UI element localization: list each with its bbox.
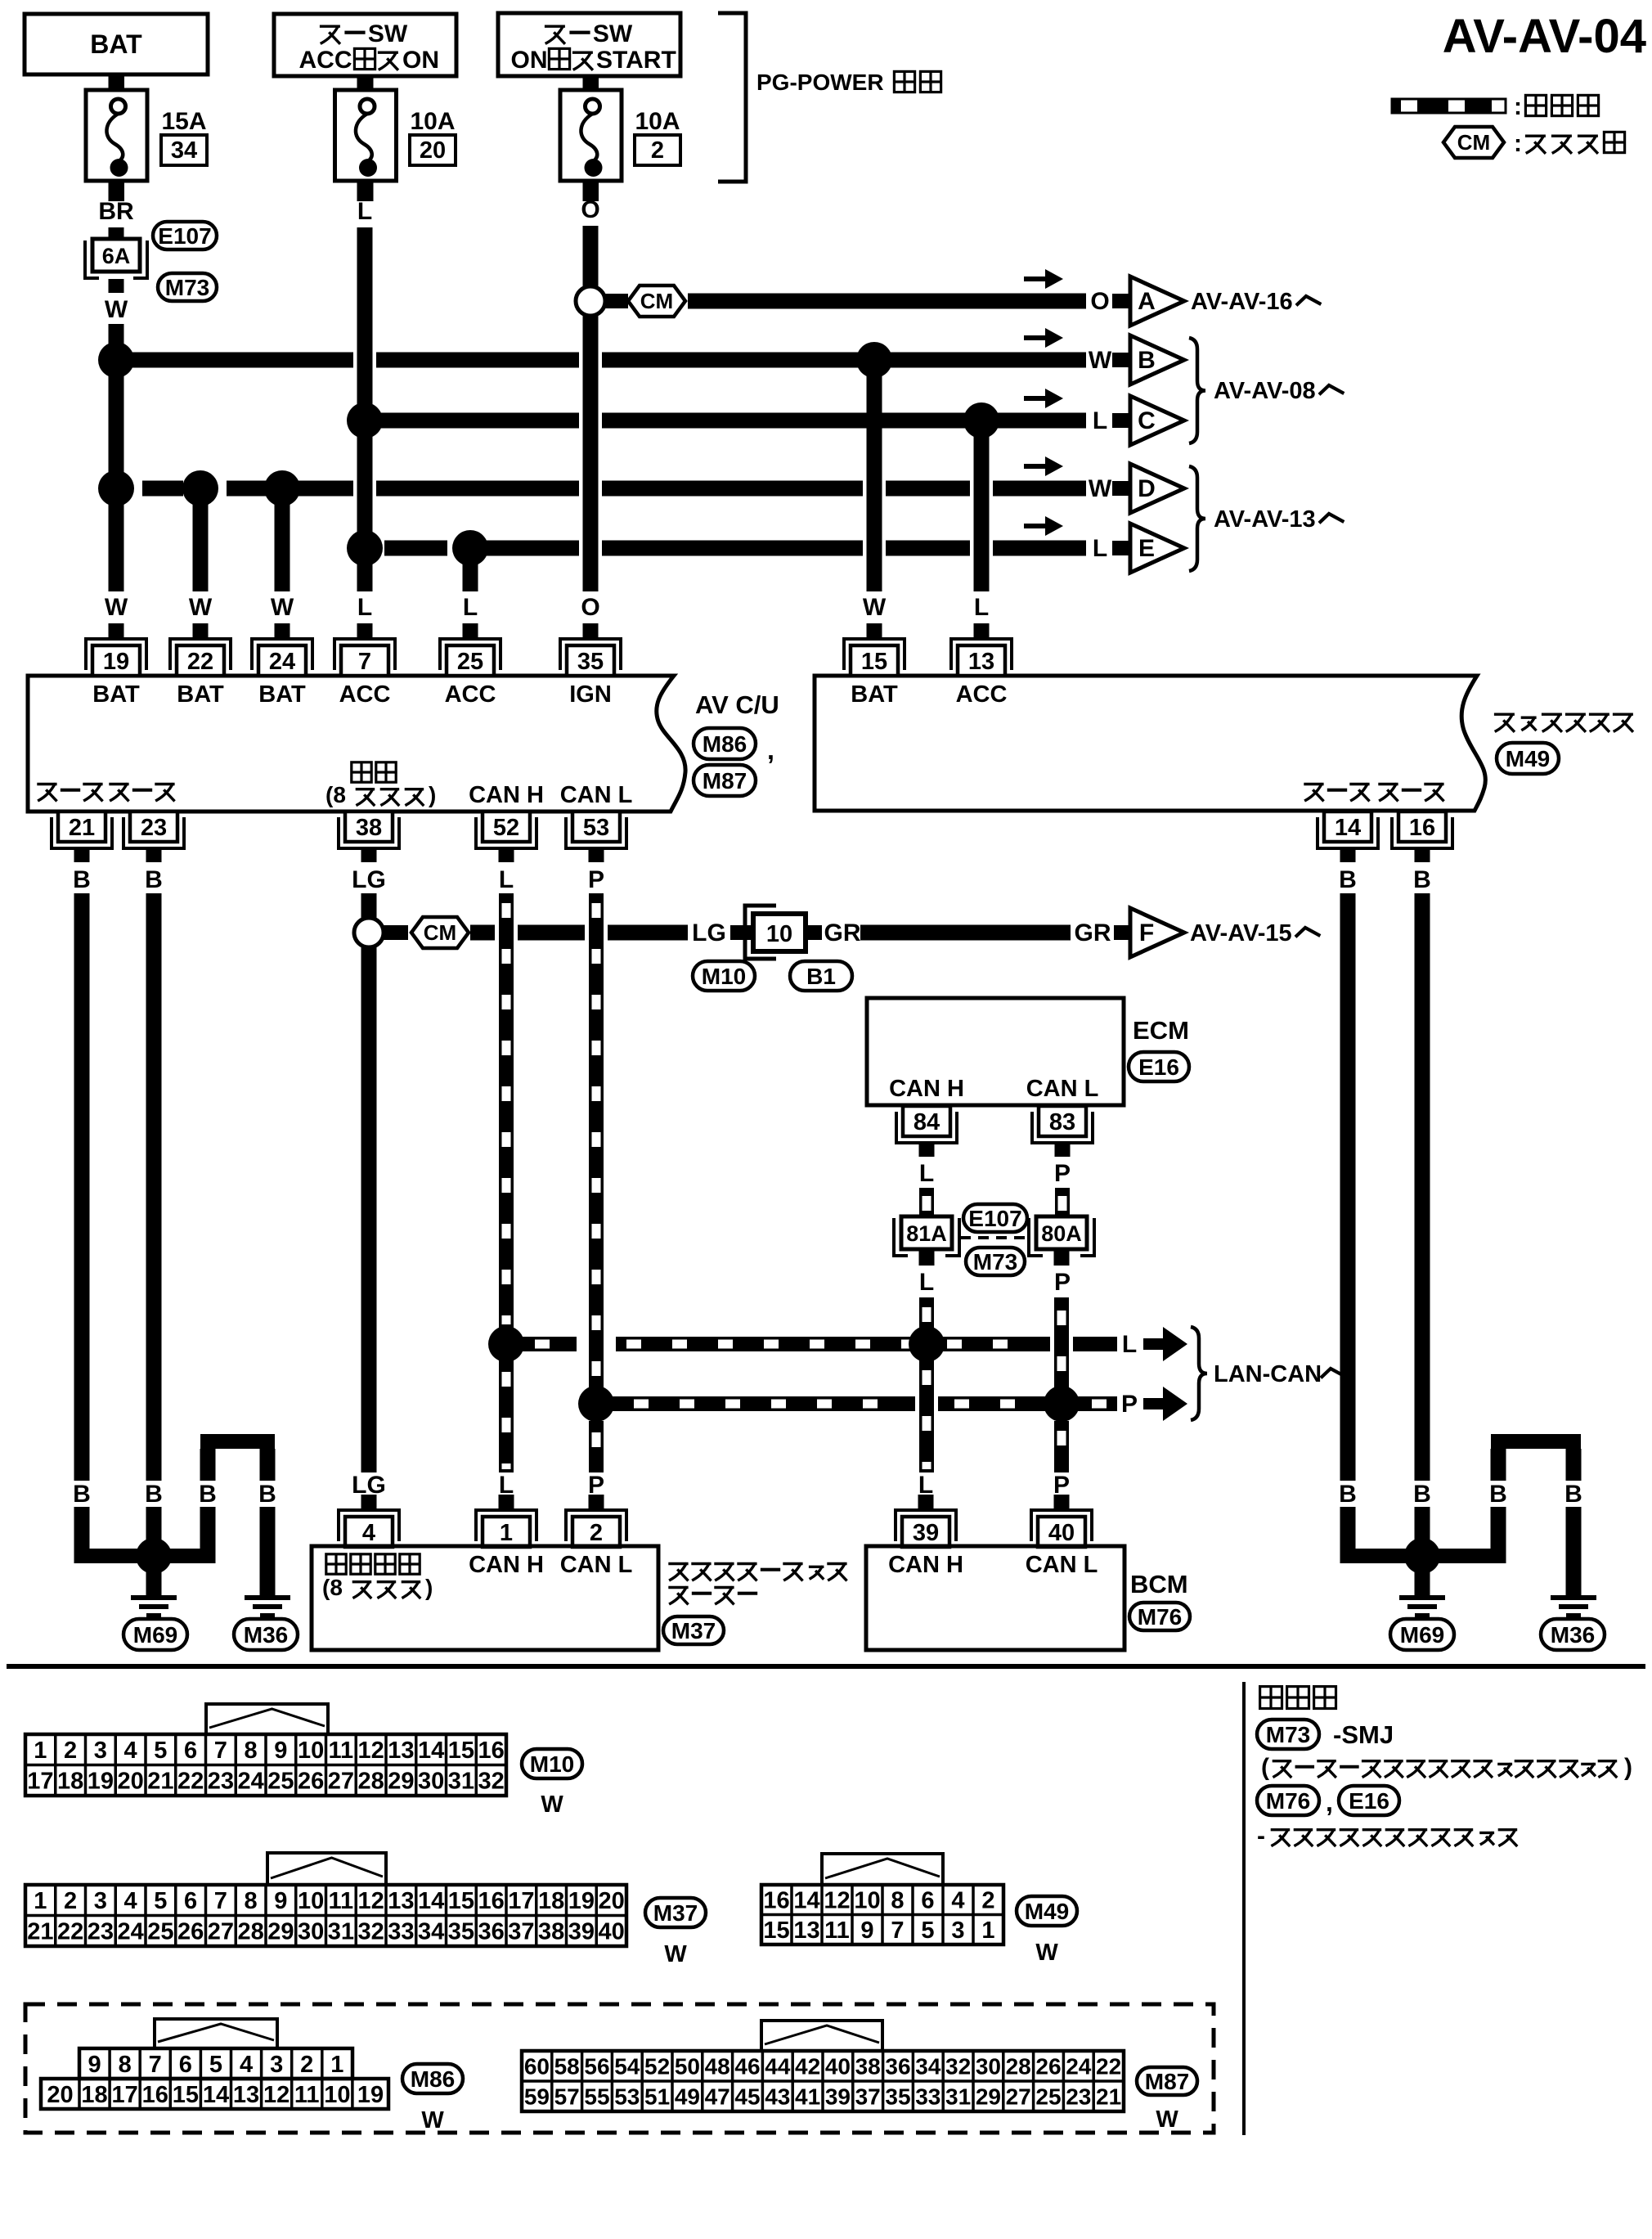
svg-text:27: 27: [1006, 2084, 1031, 2110]
svg-text:F: F: [1139, 919, 1154, 946]
svg-text:O: O: [581, 594, 599, 621]
svg-text:AV C/U: AV C/U: [695, 690, 779, 719]
svg-text:10A: 10A: [410, 108, 455, 135]
svg-text:35: 35: [885, 2084, 910, 2110]
svg-text:M76: M76: [1266, 1788, 1310, 1814]
svg-text:7: 7: [214, 1738, 227, 1764]
svg-text:83: 83: [1049, 1109, 1075, 1135]
svg-text:25: 25: [1035, 2084, 1061, 2110]
svg-text:L: L: [499, 866, 514, 893]
svg-text:B: B: [73, 866, 91, 893]
svg-text:29: 29: [388, 1768, 414, 1794]
svg-text:W: W: [863, 594, 887, 621]
svg-text:59: 59: [524, 2084, 550, 2110]
svg-text:9: 9: [274, 1738, 287, 1764]
svg-text:10: 10: [298, 1888, 324, 1914]
svg-text:IGN: IGN: [569, 681, 612, 708]
svg-text:7: 7: [214, 1888, 227, 1914]
svg-text:W: W: [1156, 2106, 1178, 2133]
svg-text:B: B: [73, 1481, 91, 1508]
svg-text:M87: M87: [703, 768, 747, 794]
svg-text:CAN H: CAN H: [469, 1552, 544, 1578]
svg-text:M37: M37: [653, 1900, 698, 1926]
svg-text:14: 14: [203, 2082, 229, 2108]
svg-text:9: 9: [88, 2052, 101, 2078]
svg-text:W: W: [105, 296, 128, 323]
svg-text:16: 16: [478, 1738, 504, 1764]
svg-text:-: -: [1257, 1823, 1265, 1850]
svg-text:B: B: [1413, 1481, 1431, 1508]
svg-text:40: 40: [825, 2054, 851, 2079]
svg-text:BAT: BAT: [92, 681, 140, 708]
svg-text:13: 13: [388, 1738, 414, 1764]
svg-text:14: 14: [793, 1887, 819, 1913]
svg-text:26: 26: [298, 1768, 324, 1794]
svg-text:B: B: [1339, 1481, 1357, 1508]
svg-text:7: 7: [358, 649, 371, 675]
svg-text:5: 5: [921, 1918, 934, 1944]
svg-text:20: 20: [47, 2082, 73, 2108]
svg-text:B: B: [258, 1481, 276, 1508]
svg-text:12: 12: [824, 1887, 850, 1913]
svg-text:M86: M86: [411, 2066, 455, 2092]
svg-text:44: 44: [765, 2054, 791, 2079]
svg-text:M49: M49: [1506, 746, 1550, 771]
svg-text:23: 23: [1066, 2084, 1091, 2110]
svg-text:20: 20: [420, 137, 446, 164]
svg-text:22: 22: [187, 649, 213, 675]
svg-text:(8: (8: [325, 782, 346, 807]
svg-text:W: W: [1089, 475, 1112, 502]
svg-text:13: 13: [233, 2082, 259, 2108]
svg-text:M73: M73: [1266, 1722, 1310, 1747]
svg-text:13: 13: [793, 1918, 819, 1944]
svg-text:50: 50: [675, 2054, 700, 2079]
svg-text:37: 37: [508, 1918, 534, 1945]
svg-text:84: 84: [914, 1109, 940, 1135]
svg-text:AV-AV-16: AV-AV-16: [1191, 289, 1293, 315]
svg-text:16: 16: [478, 1888, 504, 1914]
svg-text:13: 13: [968, 649, 994, 675]
svg-text:2: 2: [651, 137, 664, 164]
svg-text:11: 11: [294, 2082, 320, 2108]
svg-text:36: 36: [478, 1918, 504, 1945]
svg-text:53: 53: [583, 815, 609, 841]
svg-text:BAT: BAT: [851, 681, 898, 708]
svg-text:1: 1: [981, 1918, 994, 1944]
svg-text:ACC: ACC: [339, 681, 391, 708]
svg-text:31: 31: [448, 1768, 474, 1794]
svg-text:18: 18: [57, 1768, 83, 1794]
svg-text:P: P: [1121, 1391, 1138, 1418]
svg-text:12: 12: [357, 1888, 384, 1914]
svg-text:47: 47: [705, 2084, 730, 2110]
svg-text:3: 3: [94, 1738, 107, 1764]
svg-text:25: 25: [267, 1768, 294, 1794]
svg-text:34: 34: [171, 137, 197, 164]
svg-text:CAN H: CAN H: [469, 782, 544, 808]
svg-text:29: 29: [267, 1918, 294, 1945]
svg-text:GR: GR: [1075, 919, 1111, 946]
svg-text:19: 19: [103, 649, 129, 675]
svg-text:W: W: [271, 594, 294, 621]
svg-text:D: D: [1138, 475, 1156, 502]
svg-text:54: 54: [614, 2054, 640, 2079]
svg-text:23: 23: [141, 815, 167, 841]
svg-text:SW: SW: [368, 20, 408, 47]
svg-text:ACC: ACC: [299, 47, 352, 74]
svg-text:4: 4: [362, 1520, 375, 1546]
svg-text:W: W: [1089, 347, 1112, 374]
svg-text:39: 39: [825, 2084, 851, 2110]
svg-text:15: 15: [448, 1738, 474, 1764]
svg-text:LG: LG: [352, 866, 386, 893]
svg-text:25: 25: [147, 1918, 173, 1945]
svg-text:W: W: [189, 594, 213, 621]
svg-text:19: 19: [568, 1888, 595, 1914]
svg-text:48: 48: [705, 2054, 730, 2079]
svg-text:24: 24: [1066, 2054, 1092, 2079]
svg-text:B: B: [1413, 866, 1431, 893]
svg-text:AV-AV-15: AV-AV-15: [1190, 920, 1292, 946]
svg-text:21: 21: [1096, 2084, 1121, 2110]
svg-text:3: 3: [951, 1918, 964, 1944]
svg-text:M37: M37: [671, 1618, 716, 1643]
svg-text:W: W: [1035, 1940, 1058, 1966]
svg-text:46: 46: [734, 2054, 760, 2079]
svg-text:28: 28: [357, 1768, 384, 1794]
svg-text:AV-AV-04: AV-AV-04: [1443, 10, 1646, 63]
svg-text:21: 21: [147, 1768, 173, 1794]
svg-text:5: 5: [154, 1888, 167, 1914]
svg-text:1: 1: [34, 1738, 47, 1764]
svg-text:CM: CM: [640, 289, 673, 313]
svg-text:CAN L: CAN L: [560, 1552, 633, 1578]
svg-text:CM: CM: [424, 920, 456, 945]
svg-text:35: 35: [577, 649, 604, 675]
svg-text:25: 25: [457, 649, 483, 675]
svg-text:6: 6: [179, 2052, 192, 2078]
svg-text:LG: LG: [692, 919, 726, 946]
svg-text:38: 38: [855, 2054, 881, 2079]
svg-text:20: 20: [117, 1768, 143, 1794]
svg-text:15: 15: [448, 1888, 474, 1914]
svg-text:BAT: BAT: [177, 681, 224, 708]
svg-text:19: 19: [88, 1768, 114, 1794]
svg-text:2: 2: [981, 1887, 994, 1913]
svg-text:6A: 6A: [102, 244, 131, 268]
svg-text:13: 13: [388, 1888, 414, 1914]
svg-text:52: 52: [493, 815, 519, 841]
svg-text:45: 45: [734, 2084, 760, 2110]
svg-text:30: 30: [976, 2054, 1001, 2079]
svg-text:42: 42: [795, 2054, 820, 2079]
svg-text:24: 24: [237, 1768, 263, 1794]
svg-text:10: 10: [854, 1887, 880, 1913]
svg-text:38: 38: [356, 815, 382, 841]
svg-text:(8: (8: [322, 1575, 343, 1600]
svg-text:29: 29: [976, 2084, 1001, 2110]
svg-text:28: 28: [237, 1918, 263, 1945]
svg-text:52: 52: [644, 2054, 670, 2079]
svg-text:E107: E107: [158, 223, 211, 249]
svg-text:E: E: [1138, 535, 1155, 562]
svg-text:E16: E16: [1349, 1788, 1389, 1814]
svg-text:SW: SW: [593, 20, 633, 47]
svg-text:8: 8: [245, 1888, 258, 1914]
svg-text:B: B: [1564, 1481, 1582, 1508]
svg-text:START: START: [596, 47, 676, 74]
svg-text:26: 26: [177, 1918, 204, 1945]
svg-text:19: 19: [357, 2082, 384, 2108]
svg-text::: :: [1514, 130, 1522, 157]
svg-text:(: (: [1261, 1754, 1269, 1781]
svg-text:15A: 15A: [161, 108, 206, 135]
svg-text:,: ,: [1326, 1787, 1333, 1817]
svg-text:2: 2: [64, 1738, 77, 1764]
svg-text:BR: BR: [98, 198, 134, 225]
svg-text:M73: M73: [165, 275, 209, 300]
svg-text:B: B: [145, 866, 163, 893]
svg-text:10: 10: [766, 921, 792, 947]
svg-text:41: 41: [795, 2084, 820, 2110]
svg-text:15: 15: [861, 649, 887, 675]
svg-text:16: 16: [1409, 815, 1435, 841]
svg-text:14: 14: [418, 1888, 444, 1914]
svg-text:57: 57: [554, 2084, 580, 2110]
svg-text:10: 10: [324, 2082, 350, 2108]
svg-text:32: 32: [478, 1768, 504, 1794]
svg-text:L: L: [1122, 1331, 1137, 1358]
svg-text:GR: GR: [824, 919, 861, 946]
svg-text:E107: E107: [968, 1206, 1021, 1231]
svg-text:23: 23: [208, 1768, 234, 1794]
svg-text:30: 30: [418, 1768, 444, 1794]
svg-text:3: 3: [270, 2052, 283, 2078]
svg-text:1: 1: [34, 1888, 47, 1914]
svg-text:81A: 81A: [906, 1221, 947, 1246]
svg-text:L: L: [919, 1269, 934, 1296]
svg-text:8: 8: [245, 1738, 258, 1764]
svg-text:31: 31: [328, 1918, 354, 1945]
svg-text:1: 1: [330, 2052, 343, 2078]
svg-text:BCM: BCM: [1130, 1570, 1188, 1598]
svg-text:55: 55: [584, 2084, 609, 2110]
svg-text:49: 49: [675, 2084, 700, 2110]
svg-text:11: 11: [824, 1918, 850, 1944]
svg-text:16: 16: [763, 1887, 789, 1913]
svg-text:18: 18: [538, 1888, 564, 1914]
svg-text:80A: 80A: [1041, 1221, 1082, 1246]
svg-text:26: 26: [1035, 2054, 1061, 2079]
svg-text::: :: [1514, 93, 1522, 120]
svg-text:2: 2: [64, 1888, 77, 1914]
svg-text:L: L: [1093, 535, 1107, 562]
svg-text:CAN L: CAN L: [1026, 1076, 1099, 1102]
svg-text:12: 12: [357, 1738, 384, 1764]
svg-text:21: 21: [27, 1918, 53, 1945]
svg-text:21: 21: [69, 815, 95, 841]
svg-text:18: 18: [81, 2082, 107, 2108]
svg-text:38: 38: [538, 1918, 564, 1945]
svg-text:24: 24: [269, 649, 295, 675]
svg-text:33: 33: [915, 2084, 940, 2110]
svg-text:M76: M76: [1138, 1604, 1182, 1630]
svg-text:CM: CM: [1457, 130, 1490, 155]
svg-text:34: 34: [915, 2054, 941, 2079]
svg-text:8: 8: [119, 2052, 132, 2078]
svg-text:51: 51: [644, 2084, 670, 2110]
svg-text:17: 17: [27, 1768, 53, 1794]
svg-text:ON: ON: [402, 47, 439, 74]
svg-text:-SMJ: -SMJ: [1333, 1720, 1394, 1749]
svg-text:37: 37: [855, 2084, 881, 2110]
svg-text:M73: M73: [973, 1249, 1017, 1275]
svg-text:P: P: [588, 866, 604, 893]
svg-text:BAT: BAT: [90, 29, 142, 59]
svg-text:4: 4: [951, 1887, 964, 1913]
svg-text:32: 32: [357, 1918, 384, 1945]
svg-text:11: 11: [329, 1738, 354, 1764]
svg-text:M86: M86: [703, 731, 747, 757]
svg-text:M69: M69: [133, 1622, 177, 1648]
svg-text:L: L: [919, 1160, 934, 1187]
svg-text:23: 23: [88, 1918, 114, 1945]
svg-text:AV-AV-08: AV-AV-08: [1214, 378, 1316, 404]
svg-text:35: 35: [448, 1918, 474, 1945]
svg-text:27: 27: [328, 1768, 354, 1794]
svg-text:15: 15: [763, 1918, 789, 1944]
svg-text:28: 28: [1006, 2054, 1031, 2079]
svg-text:W: W: [664, 1941, 687, 1967]
svg-text:L: L: [1093, 407, 1107, 434]
svg-text:4: 4: [124, 1738, 137, 1764]
svg-text:W: W: [105, 594, 128, 621]
svg-text:C: C: [1138, 407, 1156, 434]
svg-text:PG-POWER: PG-POWER: [756, 70, 884, 95]
svg-text:M36: M36: [244, 1622, 288, 1648]
svg-text:9: 9: [860, 1918, 873, 1944]
svg-text:12: 12: [263, 2082, 290, 2108]
svg-text:8: 8: [891, 1887, 904, 1913]
svg-text:22: 22: [1096, 2054, 1121, 2079]
svg-text:ACC: ACC: [445, 681, 496, 708]
svg-text:M10: M10: [530, 1751, 574, 1777]
svg-text:40: 40: [598, 1918, 624, 1945]
svg-text:17: 17: [508, 1888, 534, 1914]
svg-text:56: 56: [584, 2054, 609, 2079]
svg-text:P: P: [1054, 1269, 1071, 1296]
svg-text:5: 5: [209, 2052, 222, 2078]
svg-text:): ): [1624, 1754, 1632, 1781]
svg-text:6: 6: [184, 1738, 197, 1764]
svg-text:,: ,: [767, 735, 774, 765]
svg-text:M36: M36: [1551, 1622, 1595, 1648]
svg-text:39: 39: [913, 1520, 939, 1546]
svg-text:5: 5: [154, 1738, 167, 1764]
svg-text:43: 43: [765, 2084, 790, 2110]
svg-text:10A: 10A: [635, 108, 680, 135]
svg-text:11: 11: [329, 1888, 354, 1914]
svg-text:10: 10: [298, 1738, 324, 1764]
svg-text:58: 58: [554, 2054, 580, 2079]
svg-text:2: 2: [590, 1520, 603, 1546]
svg-text:6: 6: [921, 1887, 934, 1913]
svg-text:36: 36: [885, 2054, 910, 2079]
svg-text:B: B: [145, 1481, 163, 1508]
svg-text:ACC: ACC: [956, 681, 1008, 708]
svg-text:L: L: [357, 594, 372, 621]
svg-text:40: 40: [1048, 1520, 1075, 1546]
svg-text:24: 24: [117, 1918, 143, 1945]
svg-text:M69: M69: [1400, 1622, 1444, 1648]
svg-text:14: 14: [1335, 815, 1361, 841]
svg-text:27: 27: [208, 1918, 234, 1945]
svg-text:30: 30: [298, 1918, 324, 1945]
svg-text:31: 31: [945, 2084, 971, 2110]
svg-text:15: 15: [173, 2082, 199, 2108]
svg-text:LAN-CAN: LAN-CAN: [1214, 1361, 1322, 1387]
svg-text:22: 22: [57, 1918, 83, 1945]
svg-text:A: A: [1138, 288, 1156, 315]
svg-text:): ): [429, 782, 436, 807]
svg-text:AV-AV-13: AV-AV-13: [1214, 506, 1316, 533]
svg-text:3: 3: [94, 1888, 107, 1914]
svg-text:20: 20: [598, 1888, 624, 1914]
svg-text:33: 33: [388, 1918, 414, 1945]
svg-text:B: B: [1138, 347, 1156, 374]
svg-text:O: O: [1090, 288, 1109, 315]
svg-text:CAN L: CAN L: [1026, 1552, 1098, 1578]
svg-text:4: 4: [124, 1888, 137, 1914]
svg-text:16: 16: [142, 2082, 168, 2108]
svg-text:L: L: [974, 594, 989, 621]
svg-text:60: 60: [524, 2054, 550, 2079]
svg-text:9: 9: [274, 1888, 287, 1914]
svg-text:M10: M10: [702, 964, 746, 989]
svg-text:B: B: [1339, 866, 1357, 893]
svg-text:B: B: [1489, 1481, 1507, 1508]
svg-text:): ): [425, 1575, 433, 1600]
svg-text:M87: M87: [1145, 2069, 1189, 2094]
svg-text:BAT: BAT: [258, 681, 306, 708]
svg-text:B: B: [199, 1481, 217, 1508]
svg-text:34: 34: [418, 1918, 444, 1945]
svg-text:M49: M49: [1025, 1899, 1069, 1924]
svg-text:39: 39: [568, 1918, 595, 1945]
svg-text:CAN H: CAN H: [889, 1076, 964, 1102]
svg-text:W: W: [421, 2107, 444, 2133]
svg-text:6: 6: [184, 1888, 197, 1914]
svg-text:22: 22: [177, 1768, 204, 1794]
svg-text:P: P: [1054, 1160, 1071, 1187]
svg-text:17: 17: [112, 2082, 138, 2108]
svg-text:ON: ON: [511, 47, 548, 74]
svg-text:CAN H: CAN H: [888, 1552, 963, 1578]
svg-text:E16: E16: [1138, 1054, 1179, 1080]
svg-text:7: 7: [149, 2052, 162, 2078]
svg-text:ECM: ECM: [1133, 1016, 1189, 1045]
svg-text:53: 53: [614, 2084, 640, 2110]
svg-text:B1: B1: [806, 964, 836, 989]
svg-text:14: 14: [418, 1738, 444, 1764]
svg-text:W: W: [541, 1792, 563, 1818]
svg-text:L: L: [463, 594, 478, 621]
svg-text:2: 2: [300, 2052, 313, 2078]
svg-text:L: L: [357, 198, 372, 225]
svg-text:7: 7: [891, 1918, 904, 1944]
svg-text:CAN L: CAN L: [560, 782, 633, 808]
